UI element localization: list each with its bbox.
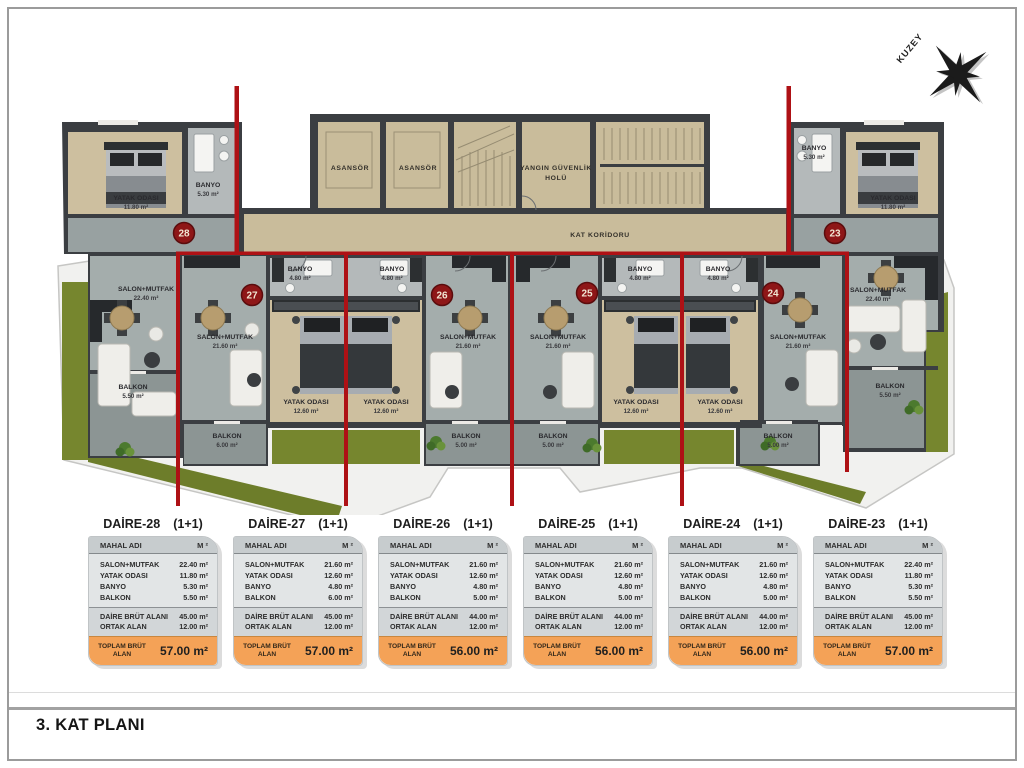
total-label: TOPLAM BRÜT ALAN (678, 643, 726, 659)
row-value: 4.80 m² (328, 581, 353, 592)
row-label: ORTAK ALAN (825, 622, 872, 632)
table-row: BALKON5.00 m² (390, 592, 498, 603)
row-label: YATAK ODASI (535, 570, 583, 581)
table-title: DAİRE-26 (393, 517, 450, 531)
table-row: ORTAK ALAN12.00 m² (390, 622, 498, 632)
table-title-row: DAİRE-25(1+1) (523, 517, 653, 531)
table-row: BANYO4.80 m² (245, 581, 353, 592)
table-row: YATAK ODASI12.60 m² (245, 570, 353, 581)
balkon-area-23: 5.50 m² (879, 392, 900, 399)
yatak-area-23: 11.80 m² (881, 204, 905, 211)
gross-rows: DAİRE BRÜT ALANI44.00 m² ORTAK ALAN12.00… (669, 607, 797, 636)
total-label: TOPLAM BRÜT ALAN (243, 643, 291, 659)
room-rows: SALON+MUTFAK21.60 m² YATAK ODASI12.60 m²… (379, 554, 507, 607)
col-area-header: M ² (197, 541, 208, 550)
row-label: YATAK ODASI (680, 570, 728, 581)
unit-area-tables: DAİRE-28(1+1) MAHAL ADIM ² SALON+MUTFAK2… (88, 517, 943, 666)
total-value: 57.00 m² (160, 644, 208, 658)
table-header: MAHAL ADIM ² (669, 537, 797, 554)
yatak-area-28: 11.80 m² (124, 204, 148, 211)
unit-badge-27: 27 (242, 285, 263, 306)
col-room-header: MAHAL ADI (100, 541, 142, 550)
row-label: YATAK ODASI (100, 570, 148, 581)
row-label: YATAK ODASI (245, 570, 293, 581)
elevator-label-1: ASANSÖR (331, 163, 369, 172)
yatak-area-24: 12.60 m² (708, 408, 733, 415)
unit-badge-26: 26 (432, 285, 453, 306)
banyo-label-26: BANYO (380, 266, 405, 273)
row-label: SALON+MUTFAK (390, 559, 449, 570)
fire-hall-label-line1: YANGIN GÜVENLİK (520, 163, 592, 172)
salon-label-27: SALON+MUTFAK (197, 334, 253, 341)
row-value: 4.80 m² (618, 581, 643, 592)
table-row: YATAK ODASI11.80 m² (825, 570, 933, 581)
row-label: BANYO (100, 581, 126, 592)
row-value: 21.60 m² (324, 559, 353, 570)
table-row: DAİRE BRÜT ALANI45.00 m² (825, 612, 933, 622)
salon-area-24: 21.60 m² (786, 343, 811, 350)
col-room-header: MAHAL ADI (680, 541, 722, 550)
table-row: BALKON5.50 m² (100, 592, 208, 603)
row-label: BANYO (535, 581, 561, 592)
banyo-area-23: 5.30 m² (803, 154, 824, 161)
table-title: DAİRE-28 (103, 517, 160, 531)
row-label: BALKON (245, 592, 276, 603)
north-label: KUZEY (894, 31, 924, 65)
unit-table-25: DAİRE-25(1+1) MAHAL ADIM ² SALON+MUTFAK2… (523, 517, 653, 666)
row-value: 45.00 m² (324, 612, 353, 622)
yatak-label-28: YATAK ODASI (113, 195, 158, 202)
table-title-row: DAİRE-23(1+1) (813, 517, 943, 531)
page-title: 3. KAT PLANI (36, 716, 145, 735)
footer-divider-dark (9, 707, 1015, 710)
unit-table-27: DAİRE-27(1+1) MAHAL ADIM ² SALON+MUTFAK2… (233, 517, 363, 666)
area-table-card: MAHAL ADIM ² SALON+MUTFAK21.60 m² YATAK … (523, 536, 653, 666)
yatak-label-25: YATAK ODASI (613, 399, 658, 406)
table-type: (1+1) (173, 517, 203, 531)
row-label: BALKON (390, 592, 421, 603)
balkon-label-26: BALKON (451, 433, 480, 440)
table-row: ORTAK ALAN12.00 m² (680, 622, 788, 632)
table-title-row: DAİRE-26(1+1) (378, 517, 508, 531)
unit-badge-23: 23 (825, 223, 846, 244)
row-value: 12.60 m² (759, 570, 788, 581)
row-label: ORTAK ALAN (100, 622, 147, 632)
table-row: DAİRE BRÜT ALANI45.00 m² (245, 612, 353, 622)
row-label: SALON+MUTFAK (100, 559, 159, 570)
row-value: 12.00 m² (614, 622, 643, 632)
row-value: 5.50 m² (183, 592, 208, 603)
salon-label-26: SALON+MUTFAK (440, 334, 496, 341)
balkon-area-27: 6.00 m² (216, 442, 237, 449)
table-row: BANYO5.30 m² (100, 581, 208, 592)
table-title-row: DAİRE-24(1+1) (668, 517, 798, 531)
row-value: 44.00 m² (759, 612, 788, 622)
row-label: DAİRE BRÜT ALANI (535, 612, 603, 622)
banyo-area-28: 5.30 m² (197, 191, 218, 198)
salon-area-25: 21.60 m² (546, 343, 571, 350)
row-value: 21.60 m² (614, 559, 643, 570)
row-label: ORTAK ALAN (390, 622, 437, 632)
table-row: SALON+MUTFAK22.40 m² (825, 559, 933, 570)
banyo-area-25: 4.80 m² (629, 275, 650, 282)
table-row: DAİRE BRÜT ALANI44.00 m² (390, 612, 498, 622)
banyo-label-24: BANYO (706, 266, 731, 273)
row-label: SALON+MUTFAK (825, 559, 884, 570)
unit-number: 25 (581, 289, 593, 300)
balkon-area-26: 5.00 m² (455, 442, 476, 449)
row-label: ORTAK ALAN (680, 622, 727, 632)
col-area-header: M ² (342, 541, 353, 550)
table-row: BALKON5.00 m² (680, 592, 788, 603)
col-area-header: M ² (487, 541, 498, 550)
row-label: BALKON (680, 592, 711, 603)
row-value: 12.60 m² (614, 570, 643, 581)
col-area-header: M ² (632, 541, 643, 550)
row-value: 5.00 m² (763, 592, 788, 603)
area-table-card: MAHAL ADIM ² SALON+MUTFAK21.60 m² YATAK … (378, 536, 508, 666)
area-table-card: MAHAL ADIM ² SALON+MUTFAK21.60 m² YATAK … (668, 536, 798, 666)
table-row: DAİRE BRÜT ALANI44.00 m² (680, 612, 788, 622)
table-row: YATAK ODASI12.60 m² (390, 570, 498, 581)
row-label: BALKON (535, 592, 566, 603)
row-value: 22.40 m² (179, 559, 208, 570)
table-row: ORTAK ALAN12.00 m² (245, 622, 353, 632)
total-value: 56.00 m² (450, 644, 498, 658)
row-value: 5.50 m² (908, 592, 933, 603)
row-label: YATAK ODASI (390, 570, 438, 581)
row-value: 12.00 m² (904, 622, 933, 632)
row-value: 11.80 m² (180, 570, 208, 581)
balkon-label-28: BALKON (118, 384, 147, 391)
salon-area-27: 21.60 m² (213, 343, 238, 350)
row-label: SALON+MUTFAK (245, 559, 304, 570)
elevator-label-2: ASANSÖR (399, 163, 437, 172)
gross-rows: DAİRE BRÜT ALANI45.00 m² ORTAK ALAN12.00… (234, 607, 362, 636)
row-label: ORTAK ALAN (535, 622, 582, 632)
salon-area-28: 22.40 m² (134, 295, 159, 302)
unit-badge-24: 24 (763, 283, 784, 304)
gross-rows: DAİRE BRÜT ALANI45.00 m² ORTAK ALAN12.00… (814, 607, 942, 636)
col-room-header: MAHAL ADI (390, 541, 432, 550)
table-header: MAHAL ADIM ² (234, 537, 362, 554)
table-type: (1+1) (463, 517, 493, 531)
row-value: 44.00 m² (469, 612, 498, 622)
banyo-label-27: BANYO (288, 266, 313, 273)
row-label: BANYO (680, 581, 706, 592)
table-row: ORTAK ALAN12.00 m² (825, 622, 933, 632)
salon-label-25: SALON+MUTFAK (530, 334, 586, 341)
table-row: ORTAK ALAN12.00 m² (535, 622, 643, 632)
row-label: DAİRE BRÜT ALANI (680, 612, 748, 622)
unit-number: 28 (178, 229, 190, 240)
row-value: 12.60 m² (469, 570, 498, 581)
table-header: MAHAL ADIM ² (814, 537, 942, 554)
table-title-row: DAİRE-28(1+1) (88, 517, 218, 531)
total-row: TOPLAM BRÜT ALAN57.00 m² (89, 636, 217, 665)
gross-rows: DAİRE BRÜT ALANI45.00 m² ORTAK ALAN12.00… (89, 607, 217, 636)
row-value: 12.00 m² (469, 622, 498, 632)
table-row: BANYO4.80 m² (680, 581, 788, 592)
area-table-card: MAHAL ADIM ² SALON+MUTFAK22.40 m² YATAK … (88, 536, 218, 666)
total-value: 57.00 m² (305, 644, 353, 658)
total-row: TOPLAM BRÜT ALAN56.00 m² (379, 636, 507, 665)
balkon-area-28: 5.50 m² (122, 393, 143, 400)
row-label: BANYO (245, 581, 271, 592)
salon-label-28: SALON+MUTFAK (118, 286, 174, 293)
col-area-header: M ² (777, 541, 788, 550)
corridor-label: KAT KORİDORU (570, 231, 630, 239)
banyo-label-23: BANYO (802, 145, 827, 152)
banyo-label-28: BANYO (196, 182, 221, 189)
table-header: MAHAL ADIM ² (89, 537, 217, 554)
row-value: 22.40 m² (904, 559, 933, 570)
row-label: DAİRE BRÜT ALANI (100, 612, 168, 622)
table-row: SALON+MUTFAK21.60 m² (390, 559, 498, 570)
row-value: 4.80 m² (473, 581, 498, 592)
unit-number: 26 (436, 291, 448, 302)
table-title-row: DAİRE-27(1+1) (233, 517, 363, 531)
room-rows: SALON+MUTFAK21.60 m² YATAK ODASI12.60 m²… (524, 554, 652, 607)
total-value: 56.00 m² (740, 644, 788, 658)
salon-area-23: 22.40 m² (866, 296, 891, 303)
row-label: BANYO (390, 581, 416, 592)
row-label: DAİRE BRÜT ALANI (390, 612, 458, 622)
table-header: MAHAL ADIM ² (379, 537, 507, 554)
gross-rows: DAİRE BRÜT ALANI44.00 m² ORTAK ALAN12.00… (379, 607, 507, 636)
row-label: BALKON (100, 592, 131, 603)
table-row: SALON+MUTFAK21.60 m² (680, 559, 788, 570)
row-value: 21.60 m² (759, 559, 788, 570)
yatak-area-27: 12.60 m² (294, 408, 319, 415)
row-value: 12.00 m² (324, 622, 353, 632)
yatak-area-25: 12.60 m² (624, 408, 649, 415)
area-table-card: MAHAL ADIM ² SALON+MUTFAK21.60 m² YATAK … (233, 536, 363, 666)
room-rows: SALON+MUTFAK21.60 m² YATAK ODASI12.60 m²… (234, 554, 362, 607)
total-row: TOPLAM BRÜT ALAN57.00 m² (234, 636, 362, 665)
row-value: 5.30 m² (908, 581, 933, 592)
row-value: 12.00 m² (759, 622, 788, 632)
table-row: BANYO4.80 m² (535, 581, 643, 592)
row-label: SALON+MUTFAK (680, 559, 739, 570)
room-rows: SALON+MUTFAK22.40 m² YATAK ODASI11.80 m²… (814, 554, 942, 607)
yatak-area-26: 12.60 m² (374, 408, 399, 415)
row-value: 6.00 m² (328, 592, 353, 603)
row-label: BANYO (825, 581, 851, 592)
floor-plan-page: 28 27 26 25 24 23 SALON+MUTFAK 22.40 m² … (0, 0, 1024, 768)
unit-number: 24 (767, 289, 779, 300)
total-row: TOPLAM BRÜT ALAN56.00 m² (524, 636, 652, 665)
table-title: DAİRE-23 (828, 517, 885, 531)
col-room-header: MAHAL ADI (535, 541, 577, 550)
table-row: YATAK ODASI12.60 m² (535, 570, 643, 581)
col-room-header: MAHAL ADI (245, 541, 287, 550)
banyo-area-26: 4.80 m² (381, 275, 402, 282)
table-row: SALON+MUTFAK21.60 m² (535, 559, 643, 570)
row-value: 44.00 m² (614, 612, 643, 622)
salon-area-26: 21.60 m² (456, 343, 481, 350)
table-type: (1+1) (608, 517, 638, 531)
room-rows: SALON+MUTFAK21.60 m² YATAK ODASI12.60 m²… (669, 554, 797, 607)
salon-label-24: SALON+MUTFAK (770, 334, 826, 341)
row-value: 12.60 m² (324, 570, 353, 581)
table-title: DAİRE-25 (538, 517, 595, 531)
total-label: TOPLAM BRÜT ALAN (98, 643, 146, 659)
balkon-label-25: BALKON (538, 433, 567, 440)
unit-table-26: DAİRE-26(1+1) MAHAL ADIM ² SALON+MUTFAK2… (378, 517, 508, 666)
unit-badge-28: 28 (174, 223, 195, 244)
total-label: TOPLAM BRÜT ALAN (388, 643, 436, 659)
area-table-card: MAHAL ADIM ² SALON+MUTFAK22.40 m² YATAK … (813, 536, 943, 666)
col-room-header: MAHAL ADI (825, 541, 867, 550)
total-value: 56.00 m² (595, 644, 643, 658)
table-row: SALON+MUTFAK21.60 m² (245, 559, 353, 570)
row-value: 11.80 m² (905, 570, 933, 581)
table-title: DAİRE-24 (683, 517, 740, 531)
banyo-area-24: 4.80 m² (707, 275, 728, 282)
table-row: BALKON5.50 m² (825, 592, 933, 603)
table-type: (1+1) (898, 517, 928, 531)
banyo-area-27: 4.80 m² (289, 275, 310, 282)
room-rows: SALON+MUTFAK22.40 m² YATAK ODASI11.80 m²… (89, 554, 217, 607)
row-value: 45.00 m² (179, 612, 208, 622)
table-title: DAİRE-27 (248, 517, 305, 531)
row-label: BALKON (825, 592, 856, 603)
balkon-label-27: BALKON (212, 433, 241, 440)
row-value: 5.00 m² (473, 592, 498, 603)
table-row: BALKON5.00 m² (535, 592, 643, 603)
row-label: YATAK ODASI (825, 570, 873, 581)
unit-table-23: DAİRE-23(1+1) MAHAL ADIM ² SALON+MUTFAK2… (813, 517, 943, 666)
table-type: (1+1) (753, 517, 783, 531)
table-row: SALON+MUTFAK22.40 m² (100, 559, 208, 570)
balkon-area-25: 5.00 m² (542, 442, 563, 449)
unit-number: 27 (246, 291, 258, 302)
col-area-header: M ² (922, 541, 933, 550)
row-label: ORTAK ALAN (245, 622, 292, 632)
row-value: 45.00 m² (904, 612, 933, 622)
table-row: BANYO5.30 m² (825, 581, 933, 592)
row-label: DAİRE BRÜT ALANI (245, 612, 313, 622)
table-row: BANYO4.80 m² (390, 581, 498, 592)
fire-hall-label-line2: HOLÜ (545, 173, 567, 182)
table-row: DAİRE BRÜT ALANI44.00 m² (535, 612, 643, 622)
yatak-label-26: YATAK ODASI (363, 399, 408, 406)
balkon-label-24: BALKON (763, 433, 792, 440)
total-row: TOPLAM BRÜT ALAN56.00 m² (669, 636, 797, 665)
salon-label-23: SALON+MUTFAK (850, 287, 906, 294)
table-type: (1+1) (318, 517, 348, 531)
footer-divider-light (9, 692, 1015, 693)
table-row: YATAK ODASI12.60 m² (680, 570, 788, 581)
table-row: BALKON6.00 m² (245, 592, 353, 603)
unit-table-28: DAİRE-28(1+1) MAHAL ADIM ² SALON+MUTFAK2… (88, 517, 218, 666)
table-row: DAİRE BRÜT ALANI45.00 m² (100, 612, 208, 622)
total-label: TOPLAM BRÜT ALAN (533, 643, 581, 659)
unit-badge-25: 25 (577, 283, 598, 304)
table-header: MAHAL ADIM ² (524, 537, 652, 554)
total-value: 57.00 m² (885, 644, 933, 658)
gross-rows: DAİRE BRÜT ALANI44.00 m² ORTAK ALAN12.00… (524, 607, 652, 636)
table-row: ORTAK ALAN12.00 m² (100, 622, 208, 632)
floor-plan-drawing: 28 27 26 25 24 23 SALON+MUTFAK 22.40 m² … (0, 0, 1024, 515)
row-value: 4.80 m² (763, 581, 788, 592)
row-label: SALON+MUTFAK (535, 559, 594, 570)
row-label: DAİRE BRÜT ALANI (825, 612, 893, 622)
banyo-label-25: BANYO (628, 266, 653, 273)
balkon-label-23: BALKON (875, 383, 904, 390)
yatak-label-23: YATAK ODASI (870, 195, 915, 202)
table-row: YATAK ODASI11.80 m² (100, 570, 208, 581)
row-value: 5.00 m² (618, 592, 643, 603)
balkon-area-24: 5.00 m² (767, 442, 788, 449)
compass-rose: KUZEY (894, 23, 1011, 126)
unit-number: 23 (829, 229, 841, 240)
yatak-label-27: YATAK ODASI (283, 399, 328, 406)
row-value: 12.00 m² (179, 622, 208, 632)
row-value: 5.30 m² (183, 581, 208, 592)
total-label: TOPLAM BRÜT ALAN (823, 643, 871, 659)
yatak-label-24: YATAK ODASI (697, 399, 742, 406)
unit-table-24: DAİRE-24(1+1) MAHAL ADIM ² SALON+MUTFAK2… (668, 517, 798, 666)
total-row: TOPLAM BRÜT ALAN57.00 m² (814, 636, 942, 665)
row-value: 21.60 m² (469, 559, 498, 570)
